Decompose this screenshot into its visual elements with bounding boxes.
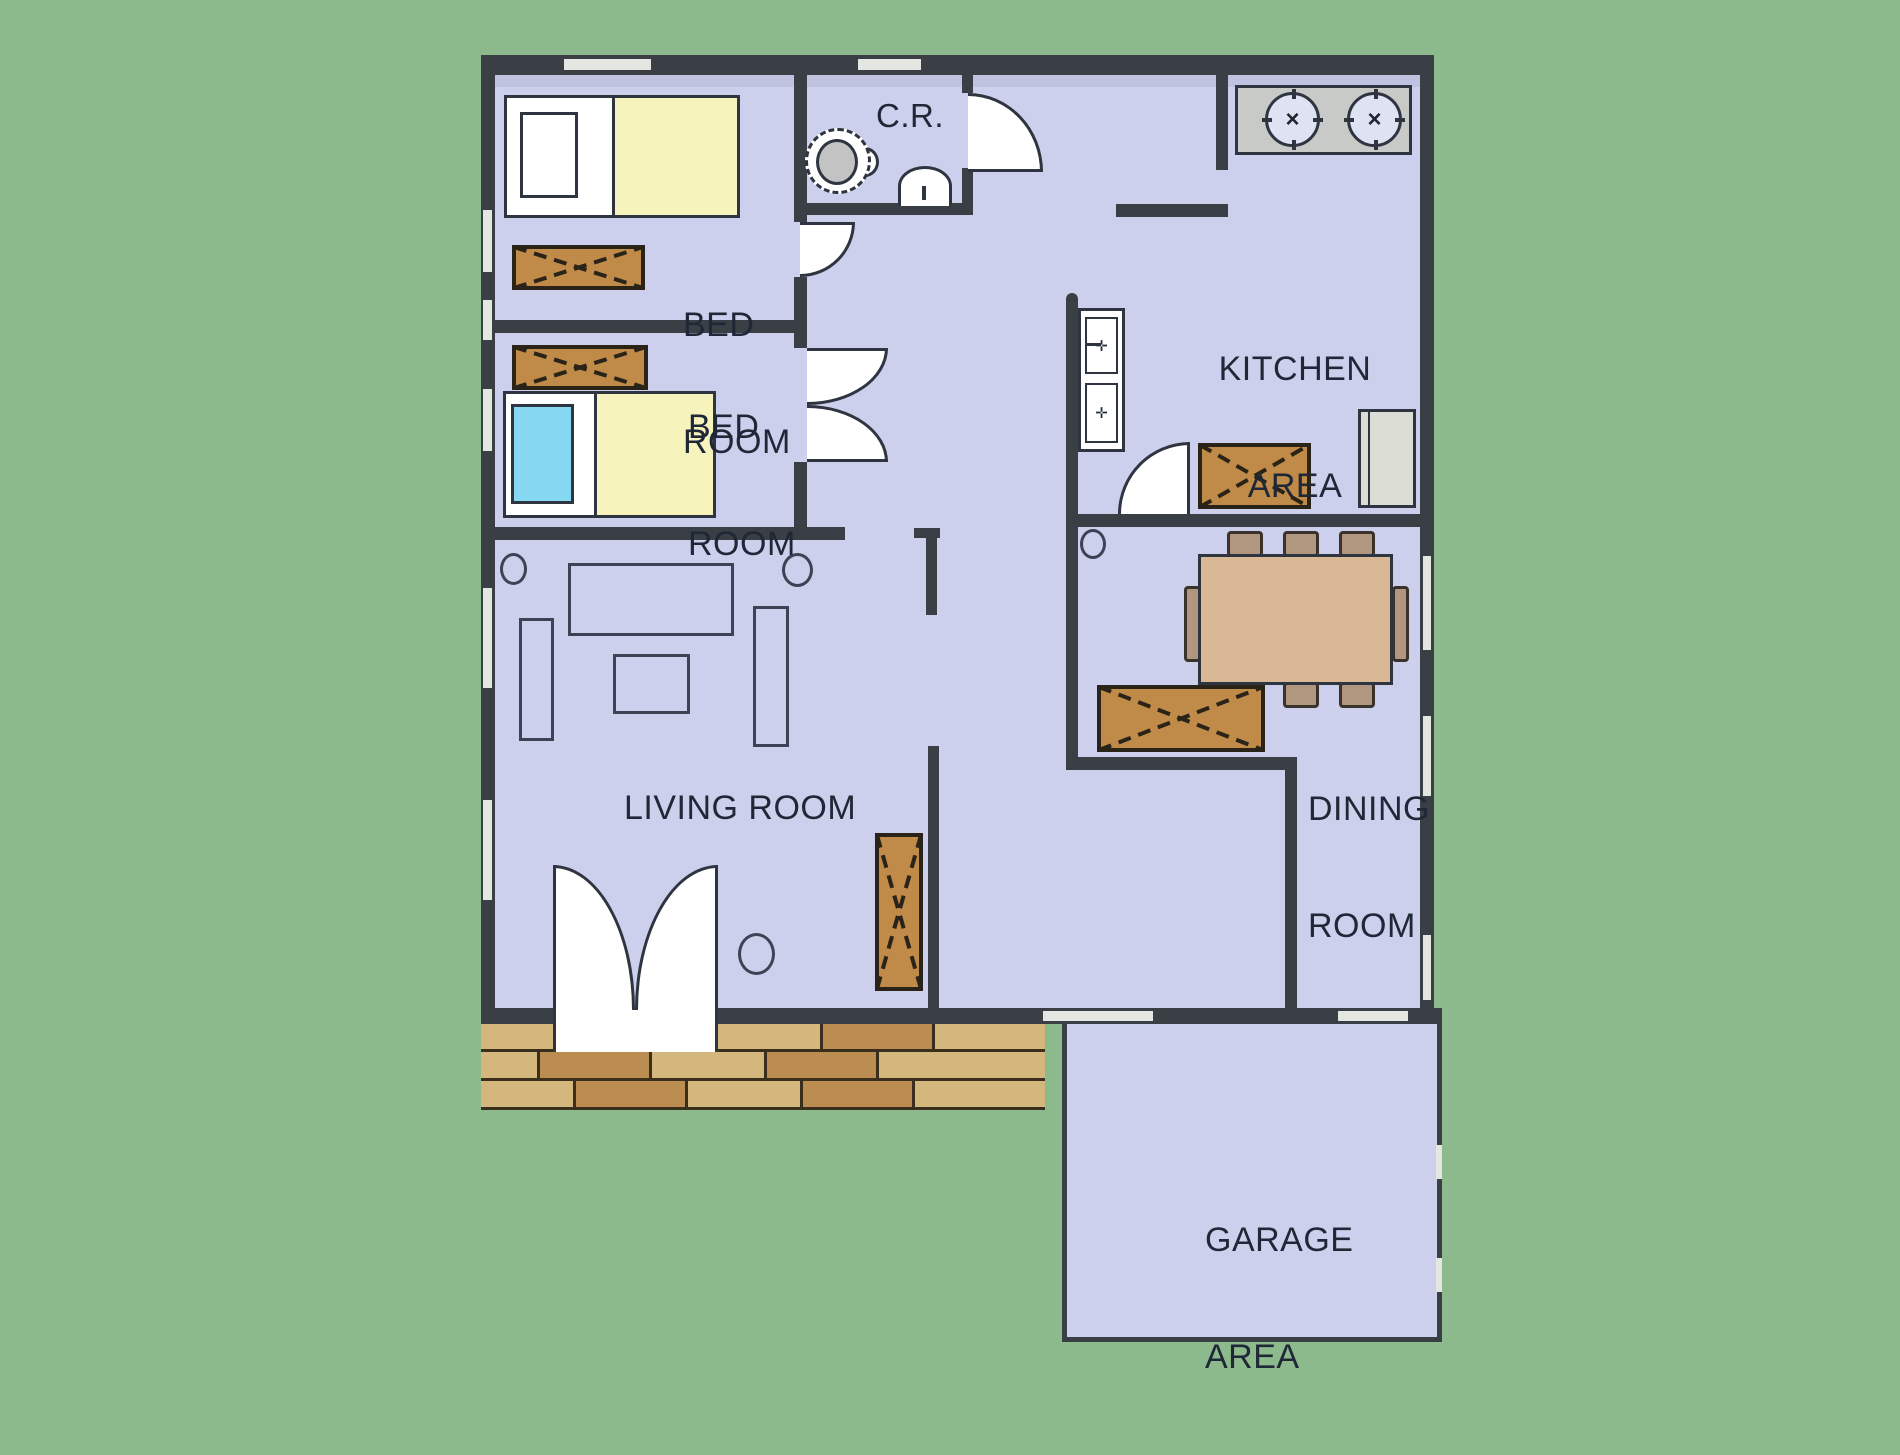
kitchen-label-line2: AREA: [1190, 467, 1400, 506]
wall-dining-bottom: [1066, 757, 1297, 770]
garage-label: GARAGE AREA: [1205, 1143, 1353, 1455]
plant-dining: [1080, 529, 1106, 559]
wall-bedroom-right-upper: [794, 75, 807, 222]
plant-living-left: [500, 553, 527, 585]
cr-sink-tap: [922, 186, 926, 200]
bedroom2-label: BED ROOM: [688, 330, 796, 642]
wall-kitchen-partition-vertical: [1216, 75, 1228, 170]
bedroom2-label-line1: BED: [688, 408, 796, 447]
garage-window-right-1: [1436, 1145, 1442, 1179]
bed2-dresser: [512, 345, 648, 390]
wall-dining-living-divider: [1285, 757, 1297, 1008]
window-left-living-upper: [483, 588, 492, 688]
bed2-pillow: [511, 404, 574, 504]
wall-kitchen-partition-horizontal: [1116, 204, 1228, 217]
window-left-living-lower: [483, 800, 492, 900]
kitchen-label-line1: KITCHEN: [1190, 350, 1400, 389]
kitchen-sink-faucet: [1087, 343, 1101, 346]
dining-label-line1: DINING: [1308, 790, 1430, 829]
brick-row-2: [481, 1052, 1045, 1081]
wall-sink-dining-left: [1066, 293, 1078, 770]
stove-burner-left: ×: [1265, 92, 1320, 147]
living-label: LIVING ROOM: [624, 789, 856, 828]
dining-chair-right: [1392, 586, 1409, 662]
window-top-cr: [858, 59, 921, 70]
window-bottom-garage-left: [1043, 1011, 1153, 1021]
garage-label-line1: GARAGE: [1205, 1221, 1353, 1260]
window-left-bedroom2-lower: [483, 389, 492, 451]
bedroom2-label-line2: ROOM: [688, 525, 796, 564]
window-left-bedroom1: [483, 210, 492, 272]
window-right-dining-upper: [1423, 556, 1431, 650]
stove-burner-right: ×: [1347, 92, 1402, 147]
burner-x-icon: ×: [1350, 95, 1399, 144]
dining-label: DINING ROOM: [1308, 712, 1430, 1024]
plant-entry: [738, 933, 775, 975]
dining-label-line2: ROOM: [1308, 907, 1430, 946]
coffee-table: [613, 654, 690, 714]
brick-row-3: [481, 1081, 1045, 1110]
kitchen-sink-basin-lower: ✛: [1085, 383, 1118, 443]
dining-chair-bottom-2: [1283, 682, 1319, 708]
wall-bedroom-right-mid: [794, 277, 807, 348]
dining-sideboard: [1097, 685, 1265, 752]
hall-cabinet: [875, 833, 923, 991]
bed1-blanket: [612, 95, 740, 218]
entrance-opening: [553, 1008, 718, 1052]
armchair-left: [519, 618, 554, 741]
window-left-bedroom2-upper: [483, 300, 492, 340]
bed1-dresser: [512, 245, 645, 290]
kitchen-label: KITCHEN AREA: [1190, 272, 1400, 584]
dining-chair-bottom-3: [1339, 682, 1375, 708]
garage-window-right-2: [1436, 1258, 1442, 1292]
bed1-pillow: [520, 112, 578, 198]
floor-plan: × × ✛ ✛: [0, 0, 1900, 1425]
garage-label-line2: AREA: [1205, 1338, 1353, 1377]
window-top-bedroom1: [564, 59, 651, 70]
wall-cr-right-upper: [962, 75, 973, 93]
wall-hall-stub-lower: [928, 746, 939, 1008]
toilet-lid: [816, 139, 858, 185]
wall-hall-stub-cap: [914, 528, 940, 538]
cr-label: C.R.: [876, 96, 944, 135]
burner-x-icon: ×: [1268, 95, 1317, 144]
wall-hall-stub-upper: [926, 538, 937, 615]
